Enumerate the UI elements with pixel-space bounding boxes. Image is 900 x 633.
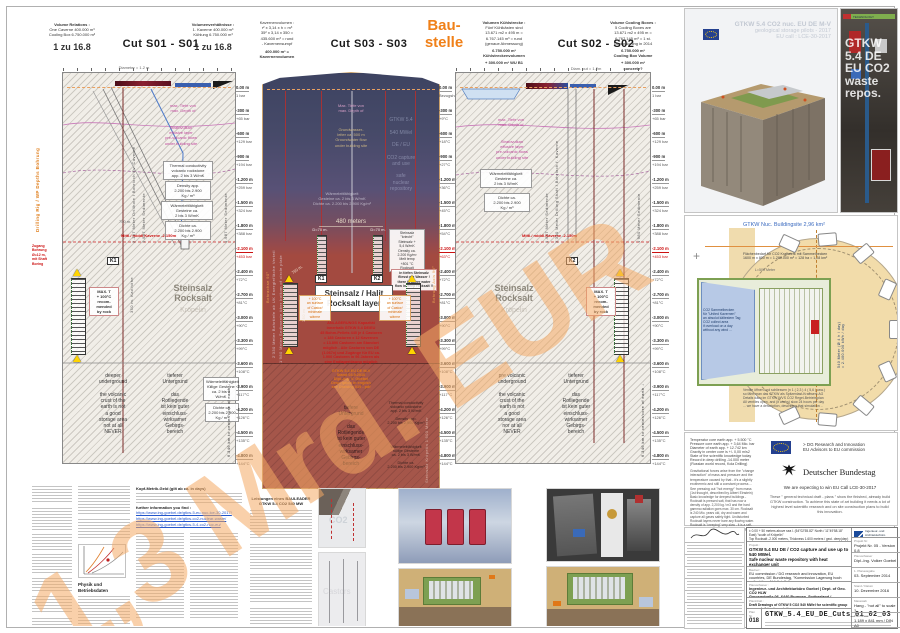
render-title: GTKW 5.4 CO2 nuc. EU DE M-V	[713, 21, 831, 28]
gtkw-building-bar	[115, 81, 171, 86]
photo-drilling-machines	[546, 488, 660, 562]
title-block-field: Stand / Datum 10. Dezember 2016	[852, 583, 900, 598]
stratovulkan-note: Stratovulkan effusive layer pre-volcanic…	[482, 139, 542, 160]
title-block-field: Projekt Nr. Projekt Nr. 05 - Version 0.8	[852, 538, 900, 553]
surface-line	[267, 89, 435, 90]
render-subtitle-2: EU call : LCE-30-2017	[713, 34, 831, 40]
thermal-conductivity-note: Thermal conductivity volcanic rockstone …	[163, 161, 213, 180]
earth-facts-text: Temperatur core earth app. + 5.500 °C Pr…	[690, 438, 756, 466]
max-temp-note: MAX. T + 100°C recom- mended by rock	[586, 287, 616, 316]
photo-caption-bar: TECHNOLOGY	[843, 14, 895, 19]
footnote-column-3: Kopf-Metrik-Geld (gilt ab ca. in days) f…	[136, 486, 242, 626]
project-title-2: Safe nuclear waste repository with heat …	[749, 557, 849, 567]
number-label: Plan Nr.	[749, 610, 759, 618]
gtkw-building-bar	[526, 83, 568, 89]
vent-station	[817, 412, 837, 427]
k1-tag: K1	[315, 275, 327, 283]
warning-icon	[285, 275, 293, 282]
project-title-1: GTKW 5.4 EU DE / CO2 capture and use up …	[749, 547, 849, 557]
k1-tag: K1	[107, 257, 119, 265]
sediment-rotated-label: 1'980 Meter Sedimente über bottom of cir…	[278, 143, 283, 363]
signature-icon	[685, 528, 742, 542]
baustelle-label: Bau- stelle	[416, 18, 472, 51]
panel-photo-strip: TECHNOLOGY GTKW 5.4 DE EU CO2 waste repo…	[840, 8, 898, 213]
siteplan-right-note: 540 Meter (Ø 4 h / day) = 2.400.000 kWh …	[837, 308, 845, 368]
max-depth-note: Max. Tiefe von max. Depth of	[321, 103, 381, 113]
title-block-field: Massstab Hang - "not all" to scale ?	[852, 598, 900, 613]
cross-section-s03: Max. Tiefe von max. Depth of Grundwasser…	[262, 72, 440, 489]
gravitation-text: Gravitational forces arise from the "cha…	[690, 469, 756, 496]
footnote-column-2: Physik und Betriebsdaten	[78, 486, 130, 626]
cut-title-s03: Cut S03 - S03	[314, 38, 424, 50]
stratovulkan-note: Stratovulkan effusive layer pre-volcanic…	[151, 125, 211, 146]
draft-plans-paragraph: These " general technical draft - plans …	[769, 495, 891, 516]
panel-bundestag: Temperatur core earth app. + 5.500 °C Pr…	[684, 432, 898, 526]
info-links: https://www.ing-goebel.de/gtkw-5-eu-nuc-…	[136, 510, 242, 528]
steinsalz-label: Steinsalz Rocksalt	[163, 283, 223, 303]
bohrtiefe-rotated-label: 2'330 Meter Bohrtiefe ab UK Energiefläch…	[271, 123, 276, 358]
plan-sheet: Volume Relations : One Caverne 400.000 m…	[0, 0, 900, 633]
capacity-paragraph: ANLAGERUNGS Kapazität innerhalb GTKW 5.4…	[305, 321, 397, 365]
location-line-1: ± 0.00 + 50 meters above sea l. (54°02'5…	[749, 529, 849, 537]
surface-ticks	[456, 68, 650, 71]
depth-scale-pressure-left: 0.00 m1 bar-300 m+65 bar 6,5 MPa-600 m+1…	[236, 76, 260, 467]
title-block-fields: Projekt Nr. Projekt Nr. 05 - Version 0.8…	[852, 538, 900, 628]
castor-temp-note-right: + 100°C an surface of Castor/ minimale w…	[379, 295, 411, 321]
waermeleit-note: Wärmeleitfähigkeit Gesteine ca. 2 bis 3 …	[480, 169, 532, 188]
drilling-rig-rotated-label: Drilling Rig / WP Depths Bohrung	[35, 120, 40, 232]
mid-cavern-depth-label: Mittl./ middl.Kaverne -2.150m	[121, 233, 191, 238]
vent-station	[817, 232, 837, 247]
dichte-note-2: Dichte ca. 2.200 bis 2.900 Kg / m³	[205, 403, 239, 422]
max-depth-note: max. Tiefe von max. Depth of	[486, 117, 536, 127]
planner-value: Ingenieur- und Architekturbüro Goebel | …	[749, 587, 849, 598]
siteplan-facility: CO2 Sammelbecken für "United Kavernen" a…	[697, 278, 831, 386]
access-boring-note: Zugang Bohrung Ø=12 m, mit Shaft Boring	[32, 244, 60, 266]
pool-label: CO2 Sammelbecken für "United Kavernen" a…	[703, 308, 751, 332]
content-value: Draft Drawings of GTKW 5 CO2 540 MWel fo…	[749, 603, 849, 609]
warning-icon	[73, 355, 81, 362]
sediment-rotated-label-right: 1.987 Meter Sedimente	[223, 103, 228, 243]
expect-line: We are expecting to win EU Call LCE-30-2…	[771, 485, 889, 490]
dim-480-meters: 480 meters	[319, 219, 383, 227]
max-temp-note: MAX. T + 100°C recom- mended by rock	[89, 287, 119, 316]
bohrachse-label-left: Bohrachse 90°	[265, 223, 270, 303]
max-depth-note: max. Tiefe von max. Depth of	[158, 103, 208, 113]
info-link[interactable]: https://www.ing-goebel.de/gtkw-5-4-co2-n…	[136, 522, 242, 528]
north-cross-icon: +	[693, 250, 705, 262]
earth-core-label: 6.346 km to center/core of earth ↓	[226, 369, 231, 457]
siteplan-bottom-note: Ventile öffnen und schliessen (n 1 ( 2,3…	[743, 388, 853, 408]
borehole-line	[285, 91, 286, 241]
bohrachse-label-right: Bohrung Axis 90°	[431, 213, 436, 303]
deeper-underground-de: tieferer Untergrund das Rotliegende ist …	[149, 373, 201, 436]
co2-phase-diagram	[78, 544, 126, 578]
cavern-k1-column	[71, 278, 86, 355]
density-note: Density app. 2.200 bis 2.900 Kg / m³	[165, 181, 211, 200]
note-kuehlstrecke: Volumen Kühlstrecke : Fünf Kühlkästen si…	[474, 20, 534, 66]
waermeleit-note-2: Wärmeleitfähigkeit füllige Gesteine ca. …	[203, 377, 239, 401]
deep-underground-note: tiefere Untergrund das Rotliegende ist k…	[325, 405, 377, 468]
eu-commission-logo	[771, 441, 791, 454]
groundwater-note: Grundwasser- leiter ca. 500 m Groundwate…	[319, 127, 383, 148]
photo-bar-label: TECHNOLOGY	[851, 15, 874, 19]
physik-heading: Physik und Betriebsdaten	[78, 582, 130, 593]
k2-tag: K2	[371, 275, 383, 283]
panel-siteplan: + GTKW Nuc. Buildingsite 2,96 km² Fläche…	[684, 215, 898, 431]
footnote-column-1	[32, 486, 72, 626]
depth-scale-pressure-right: 0.00 m1 bar-300 m+65 bar 6,5 MPa-600 m+1…	[652, 76, 680, 467]
leistungen-heading: Leistungen eines BAULEADER GTKW 5.4 CO2 …	[250, 496, 312, 506]
bundesadler-icon	[781, 463, 797, 477]
warning-icon	[285, 347, 293, 354]
eu-advisors-line: EU Advisors to EU commission	[803, 447, 889, 452]
drillhole-rotated-label: 2.187 Meter Drillhole / Bohrloch Ev. Cav…	[131, 93, 136, 243]
footnote-column-4: Leistungen eines BAULEADER GTKW 5.4 CO2 …	[250, 496, 312, 626]
title-block-field: 1. Planausgabe 03. September 2014	[852, 568, 900, 583]
shaft-k1	[317, 235, 327, 275]
shaft-k2	[373, 235, 383, 275]
waermeleit-note: Wärmeleitfähigkeit Gesteine ca. 2 bis 3 …	[161, 201, 213, 220]
dim-150: 150 m	[301, 288, 306, 322]
steinsalz-thickness-label: Steinsalz Kröpelin 1'600 Meter	[424, 363, 429, 483]
render-co2-under-slab: CO2	[318, 488, 366, 548]
siteplan-tower	[811, 320, 819, 334]
meta-note: GTKW 5.4 EU DE M-V Stand 03.9.2016 Dipl.…	[321, 369, 381, 389]
render-aerial-1	[398, 568, 512, 626]
earth-core-label: 6.346 km to center/core of earth ↓	[640, 369, 645, 457]
iab-goebel-logo	[854, 531, 863, 538]
deeper-underground-en: pre volcanic underground the volcanic cr…	[486, 373, 538, 436]
storage-block-render	[693, 64, 831, 209]
depth-scale-temperature: 0.00 mBezugshöhe-300 m+9°C-600 m+18°C-90…	[439, 76, 456, 467]
client-value: EU commission / DG research and innovati…	[749, 572, 849, 582]
gtkw-branding-text: GTKW 5.4 540 MWel DE / EU CO2 capture an…	[375, 117, 427, 192]
deeper-underground-de: tieferer Untergrund das Rotliegende ist …	[550, 373, 602, 436]
waermeleit-note: Wärmeleitfähigkeit Gesteine ca. 2 bis 3 …	[307, 191, 377, 207]
k2-tag: K2	[566, 257, 578, 265]
note-kavernenvolumen: Kavernenvolumen : r² x 3,14 x h = m³ 35²…	[248, 20, 306, 59]
photo-headline: GTKW 5.4 DE EU CO2 waste repos.	[845, 37, 895, 100]
saltnote: Steinsalz "kriecht" Steinsalz + 5,4 W/mK…	[389, 229, 425, 272]
d70-label-left: D=70 m.	[305, 227, 335, 232]
render-red-castors	[398, 488, 512, 564]
warning-icon	[408, 347, 416, 354]
bundestag-wordmark: Deutscher Bundestag	[803, 467, 875, 477]
render-castors: Castors	[318, 552, 366, 626]
photo-machine-detail	[871, 149, 891, 181]
title-block: ± 0.00 + 50 meters above sea l. (54°02'5…	[746, 527, 898, 629]
sediment-rotated-label-right: 1'980 Meter Sedimente	[636, 103, 641, 243]
steinsalz-label: Steinsalz Rocksalt	[484, 283, 544, 303]
sediment-rotated-label: 1.987 Meter Sedimente	[141, 103, 146, 243]
cross-section-s02: max. Tiefe von max. Depth of Stratovulka…	[455, 72, 651, 464]
siteplan-dim-label: L=500 Meter	[735, 268, 795, 272]
surface-line	[460, 87, 646, 88]
dim-750: 750 m.	[291, 264, 304, 275]
render-aerial-2	[546, 566, 660, 626]
central-shaft-line	[351, 91, 353, 273]
note-volume-relations: Volume Relations : One Caverne 400.000 m…	[38, 22, 106, 53]
surface-ticks	[63, 68, 235, 71]
iab-goebel-logo-text: Ingenieur- und Architekturbüro Goebel	[865, 530, 885, 538]
warning-icon	[408, 275, 416, 282]
surface-line	[67, 87, 231, 88]
plan-number: 018	[749, 618, 759, 624]
warning-icon	[73, 269, 81, 276]
siteplan-title: GTKW Nuc. Buildingsite 2,96 km²	[743, 222, 825, 228]
kroepelin-ghost-label: Kröpelin	[488, 307, 540, 314]
siteplan-area-note: Flächenbedarf für CO2 Kraftwerk mit Samm…	[743, 252, 847, 260]
dichte-note: Dichte ca. 2.200 bis 2.900 Kg / m³	[484, 193, 530, 212]
deeper-underground-en: deeper underground the volcanic crust of…	[87, 373, 139, 436]
drawing-area: Volume Relations : One Caverne 400.000 m…	[26, 8, 682, 626]
cross-section-s01: max. Tiefe von max. Depth of Stratovulka…	[62, 72, 236, 464]
panel-3d-render: GTKW 5.4 CO2 nuc. EU DE M-V geological s…	[684, 8, 838, 213]
note-cooling-boxes: Volume Cooling Boxes : 5 Cooling Boxes a…	[602, 20, 664, 71]
vent-station	[889, 320, 898, 339]
cavern-k2-column	[614, 278, 629, 355]
warning-icon	[616, 355, 624, 362]
dim-750: 750 m.	[119, 219, 131, 224]
side-cavern-left	[283, 283, 298, 347]
sediment-rotated-label: 1.987 Meter Sedimente	[544, 103, 549, 243]
warning-icon	[616, 269, 624, 276]
note-volumenverhaeltnisse: Volumenverhältnisse : 1. Kaverne 400.000…	[182, 22, 244, 53]
mid-cavern-depth-label: Mittl./ middl.Kaverne -2.150m	[522, 233, 592, 238]
drillhole-rotated-label: 2'330 Meter Drilling Shaft / Bohrloch f.…	[554, 93, 559, 243]
cavern-height-label: 350 m. Kav.höhe	[129, 263, 134, 313]
signature-panel	[684, 527, 745, 629]
metric-table-title: Kopf-Metrik-Geld (gilt ab ca. in days)	[136, 486, 242, 491]
title-block-field: Planverfasser Dipl.-Ing. Volker Goebel	[852, 553, 900, 568]
kroepelin-ghost-label: Kröpelin	[167, 307, 219, 314]
